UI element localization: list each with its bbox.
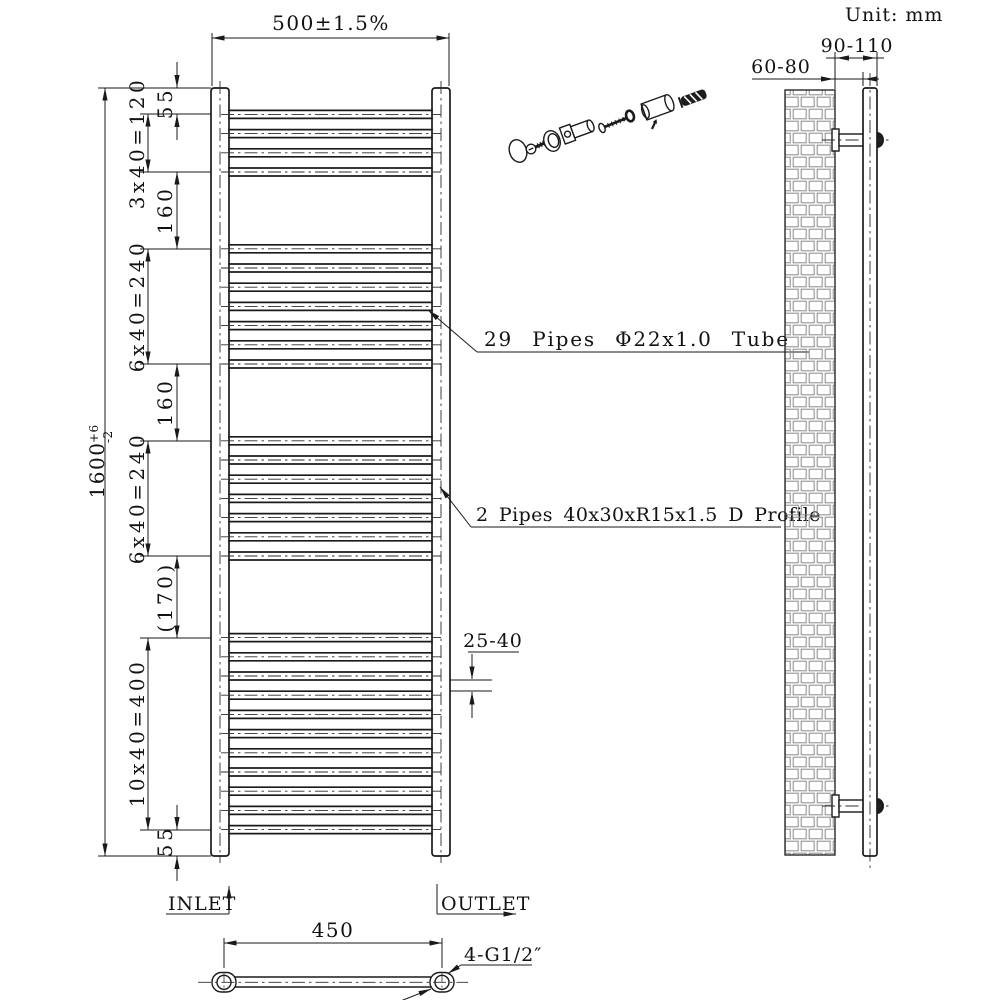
towel-pipe — [221, 514, 441, 522]
dim-gap2: 160 — [153, 378, 177, 427]
towel-pipe — [221, 806, 441, 814]
towel-pipe — [221, 302, 441, 310]
towel-pipe — [221, 653, 441, 661]
towel-pipe — [221, 130, 441, 138]
towel-pipe — [221, 768, 441, 776]
towel-pipe — [221, 672, 441, 680]
hole-distance-dimension: 450 — [224, 918, 442, 968]
towel-pipe — [221, 710, 441, 718]
dim-group4: 10x40=400 — [125, 659, 149, 808]
inlet-label: INLET — [168, 893, 236, 915]
dim-gap1: 160 — [153, 186, 177, 235]
towel-pipe — [221, 168, 441, 176]
towel-pipe — [221, 264, 441, 272]
thread-annotation-group: 4-G1/2″ — [398, 944, 542, 1000]
pipe-gap-dimension-text: 25-40 — [463, 630, 523, 652]
top-wall-bracket — [822, 129, 890, 151]
towel-pipe — [221, 360, 441, 368]
width-dimension-text: 500±1.5% — [272, 11, 390, 35]
towel-pipe — [221, 283, 441, 291]
dim-group3: 6x40=240 — [125, 432, 149, 564]
side-view: 90-110 60-80 — [751, 35, 893, 871]
bracket-body — [559, 117, 596, 144]
height-tolerance-minus: -2 — [101, 430, 115, 443]
bottom-wall-bracket — [822, 795, 890, 817]
height-tolerance-plus: +6 — [87, 424, 101, 443]
wall-section — [785, 90, 835, 855]
outlet-label-group: OUTLET — [437, 884, 530, 915]
outlet-label: OUTLET — [441, 893, 530, 915]
towel-pipe — [221, 437, 441, 445]
thread-annotation-text: 4-G1/2″ — [464, 944, 542, 966]
hole-distance-text: 450 — [312, 918, 355, 942]
grub-screw — [651, 119, 658, 129]
width-dimension: 500±1.5% — [212, 11, 449, 86]
left-rail — [211, 81, 229, 863]
right-rail — [432, 81, 450, 863]
spacer-cylinder — [639, 93, 675, 120]
wall-clearance-text: 60-80 — [751, 56, 811, 78]
pipe-gap-dimension: 25-40 — [450, 630, 523, 718]
dim-bottom-offset: 55 — [153, 825, 177, 857]
towel-pipe — [221, 456, 441, 464]
mounting-hardware-exploded-view — [506, 88, 707, 164]
towel-pipe — [221, 787, 441, 795]
towel-pipe — [221, 749, 441, 757]
dim-top-offset: 55 — [153, 87, 177, 119]
towel-radiator-technical-drawing: 500±1.5% 1600 +6 -2 — [0, 0, 1000, 1000]
collar-ring — [541, 129, 563, 154]
towel-pipe — [221, 341, 441, 349]
towel-pipe — [221, 552, 441, 560]
towel-pipe — [221, 245, 441, 253]
pipe-annotation-leader: 29 Pipes Φ22x1.0 Tube — [428, 310, 809, 352]
inlet-label-group: INLET — [166, 886, 236, 915]
dim-gap3: (170) — [153, 561, 177, 632]
towel-pipe — [221, 494, 441, 502]
height-dimension-text: 1600 — [85, 442, 109, 499]
wall-anchor — [679, 88, 708, 107]
front-view: 500±1.5% 1600 +6 -2 — [85, 11, 821, 881]
technical-drawing-page: 500±1.5% 1600 +6 -2 — [0, 0, 1000, 1000]
left-dimension-chain: 55 3x40=120 160 6x40=240 160 6x40=240 (1… — [125, 62, 211, 881]
dim-group2: 6x40=240 — [125, 240, 149, 372]
towel-pipe — [221, 730, 441, 738]
towel-pipe — [221, 691, 441, 699]
pipe-annotation-text: 29 Pipes Φ22x1.0 Tube — [484, 327, 790, 351]
profile-annotation-text: 2 Pipes 40x30xR15x1.5 D Profile — [476, 504, 821, 526]
profile-annotation-leader: 2 Pipes 40x30xR15x1.5 D Profile — [440, 487, 821, 527]
pipe-rungs — [221, 110, 441, 833]
washer — [625, 110, 636, 123]
towel-pipe — [221, 149, 441, 157]
bracket-depth-text: 90-110 — [821, 35, 894, 57]
wall-clearance-dimension: 60-80 — [751, 56, 879, 86]
long-screw — [598, 114, 629, 134]
towel-pipe — [221, 634, 441, 642]
unit-label: Unit: mm — [845, 4, 943, 26]
towel-pipe — [221, 322, 441, 330]
bracket-depth-dimension: 90-110 — [821, 35, 894, 89]
towel-pipe — [221, 826, 441, 834]
towel-pipe — [221, 110, 441, 118]
dim-group1: 3x40=120 — [125, 77, 149, 209]
bottom-view: 450 4-G1/2″ — [198, 918, 542, 1000]
flow-labels: INLET OUTLET — [166, 884, 530, 915]
towel-pipe — [221, 533, 441, 541]
towel-pipe — [221, 475, 441, 483]
